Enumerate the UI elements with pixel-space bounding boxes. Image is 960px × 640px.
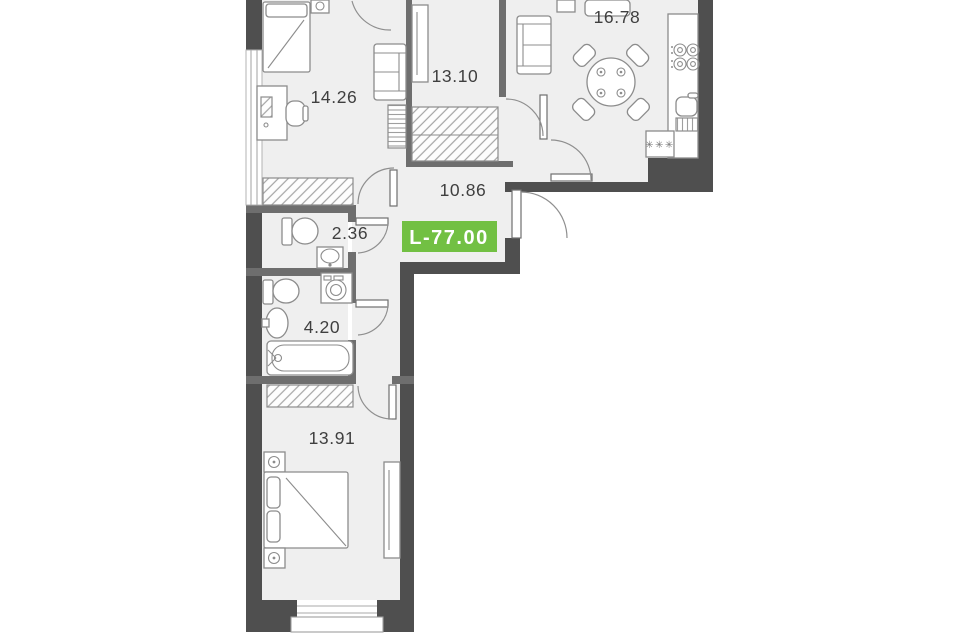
wall-bedroom1-wc	[246, 205, 356, 213]
area-label-wc: 2.36	[332, 223, 368, 243]
washbasin-small-icon	[317, 247, 343, 268]
sofa-icon	[517, 16, 551, 74]
toilet-icon	[282, 218, 318, 245]
sofa-small-icon	[374, 44, 406, 100]
nightstand-icon	[311, 0, 329, 13]
floor-plan-canvas: ✳✳✳	[0, 0, 960, 640]
wall-left-top	[246, 0, 262, 52]
side-table-icon	[557, 0, 575, 12]
cabinet-icon	[412, 5, 428, 82]
dish-rack-icon	[676, 118, 698, 131]
wardrobe-icon-2	[267, 385, 353, 407]
sliding-wardrobe-icon	[384, 462, 400, 558]
shelf-icon	[388, 105, 406, 148]
washing-machine-icon	[321, 273, 352, 303]
hallway-group	[512, 190, 567, 238]
wall-room2-hall	[406, 161, 513, 167]
toilet-icon-2	[263, 279, 299, 304]
area-label-bathroom: 4.20	[304, 317, 340, 337]
double-bed-icon	[264, 472, 348, 548]
wall-bath-bedroom2	[246, 376, 356, 384]
total-area-badge: L-77.00	[402, 221, 497, 252]
area-label-kitchen: 16.78	[594, 7, 641, 27]
wardrobe-icon	[263, 178, 353, 205]
area-label-room2: 13.10	[432, 66, 479, 86]
washer-symbol: ✳✳✳	[645, 140, 675, 151]
washing-machine-kitchen-icon: ✳✳✳	[645, 131, 675, 157]
wall-right-lower	[400, 262, 414, 632]
wall-wc-hall-a	[348, 205, 356, 222]
desk-icon	[257, 86, 287, 140]
nightstand-lamp-icon-2	[264, 548, 285, 568]
total-area-label: L-77.00	[409, 227, 488, 249]
wall-bedroom2-stub	[392, 376, 414, 384]
area-label-hallway: 10.86	[440, 180, 487, 200]
single-bed-icon	[263, 2, 310, 72]
wardrobe-large-icon	[412, 107, 498, 161]
wall-bedroom1-room2	[406, 0, 412, 167]
wall-room2-kitchen	[499, 0, 506, 97]
wall-hall-step	[400, 262, 520, 274]
wall-duct	[648, 158, 713, 192]
nightstand-lamp-icon-1	[264, 452, 285, 472]
wall-bottom-left	[246, 600, 297, 632]
area-label-bedroom1: 14.26	[311, 87, 358, 107]
entrance-door	[512, 190, 567, 238]
bathtub-icon	[267, 341, 353, 375]
floor-plan: ✳✳✳	[0, 0, 960, 640]
area-label-bedroom2: 13.91	[309, 428, 356, 448]
window-bottom	[291, 600, 383, 632]
